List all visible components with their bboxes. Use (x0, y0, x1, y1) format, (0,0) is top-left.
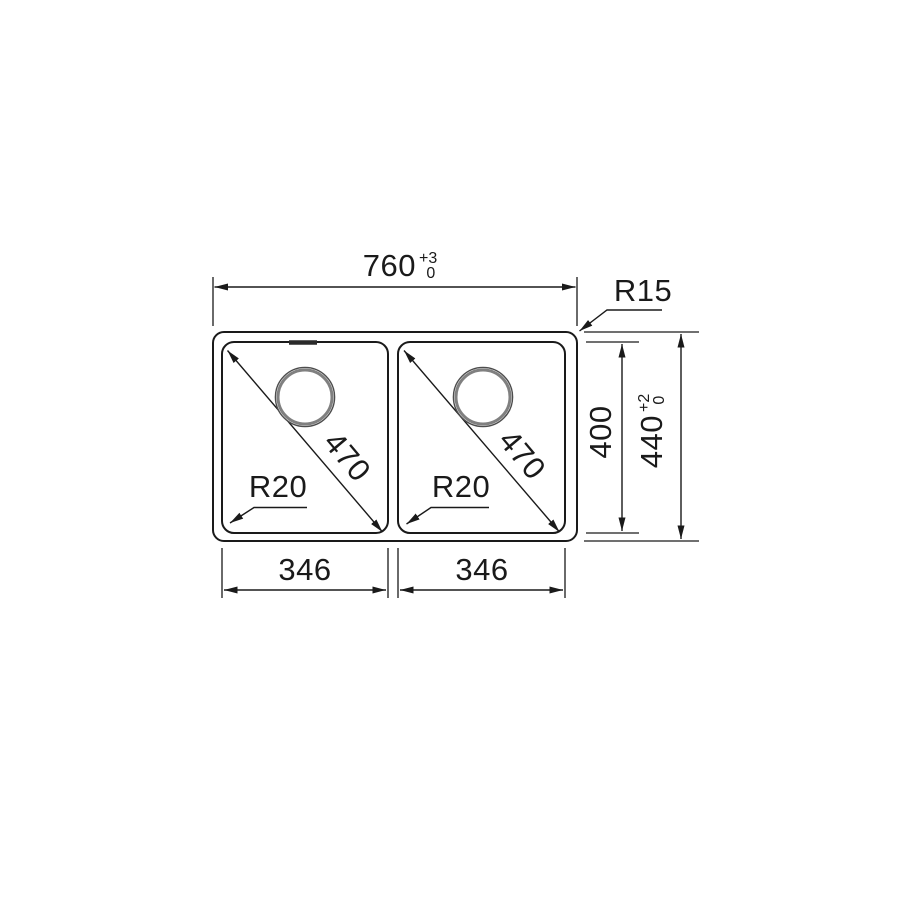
drain-circle-right (453, 367, 512, 426)
outer-radius-label: R15 (614, 273, 672, 309)
tolerance-lower: 0 (652, 396, 667, 405)
bowl-width-right-label: 346 (455, 552, 508, 588)
tolerance-lower: 0 (426, 266, 435, 281)
tolerance-upper: +3 (419, 251, 437, 266)
overall-depth-tolerance: +2 0 (637, 394, 667, 412)
overall-depth-label: 440 +2 0 (634, 394, 670, 468)
bowl-radius-right-label: R20 (432, 469, 490, 505)
drawing-geometry (0, 0, 899, 899)
bowl-width-left-label: 346 (278, 552, 331, 588)
bowl-depth-label: 400 (583, 405, 619, 458)
bowl-radius-left-value: R20 (249, 469, 307, 505)
bowl-depth-value: 400 (583, 405, 619, 458)
drain-circle-left (275, 367, 334, 426)
tolerance-upper: +2 (637, 394, 652, 412)
sink-technical-drawing: 760 +3 0 R15 470 470 R20 R20 400 440 +2 … (0, 0, 899, 899)
bowl-radius-left-label: R20 (249, 469, 307, 505)
overall-width-label: 760 +3 0 (363, 248, 437, 284)
overall-width-tolerance: +3 0 (419, 251, 437, 281)
outer-radius-value: R15 (614, 273, 672, 309)
overall-depth-value: 440 (634, 415, 670, 468)
leader-r15 (580, 310, 663, 331)
bowl-width-right-value: 346 (455, 552, 508, 588)
bowl-width-left-value: 346 (278, 552, 331, 588)
overall-width-value: 760 (363, 248, 416, 284)
bowl-radius-right-value: R20 (432, 469, 490, 505)
